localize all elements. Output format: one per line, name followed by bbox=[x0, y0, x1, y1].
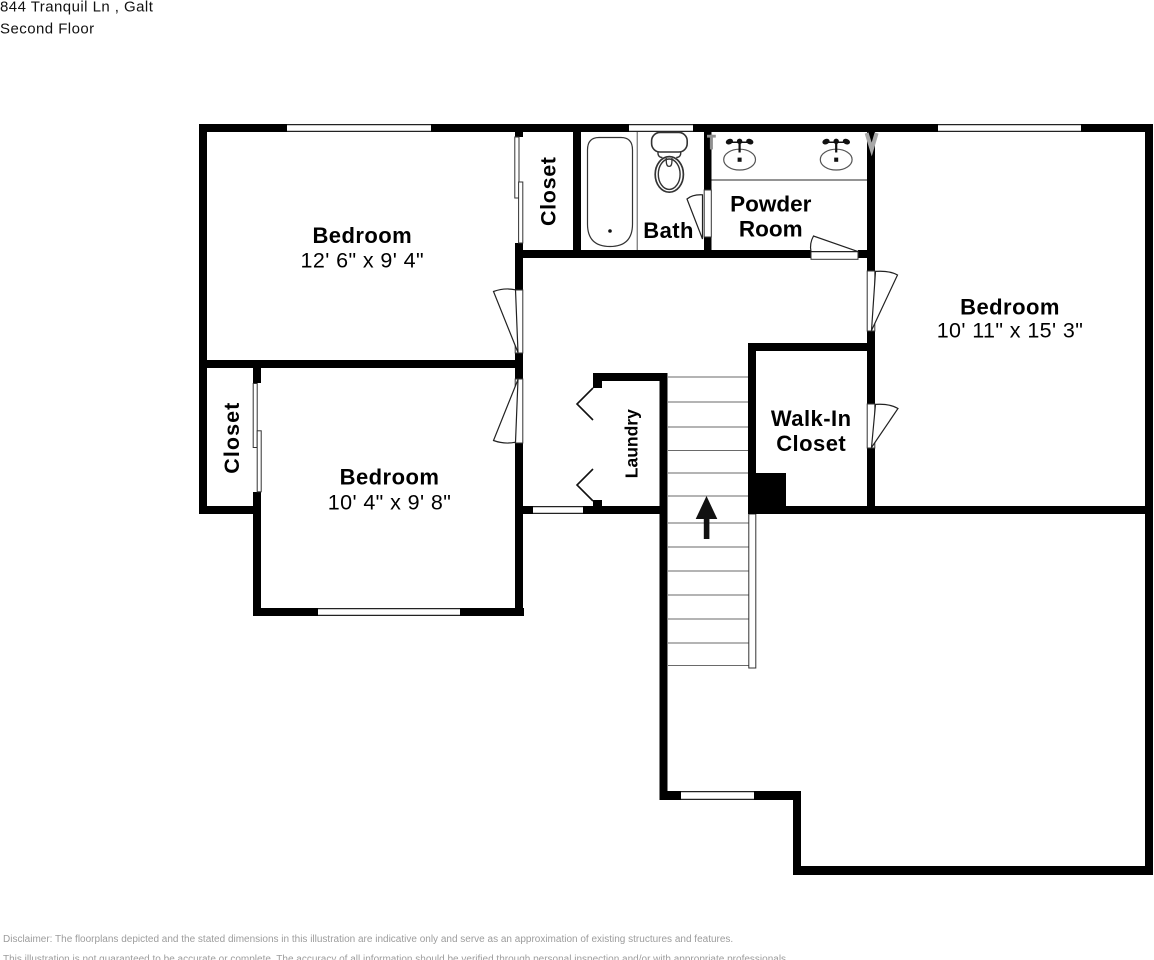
svg-text:This illustration is not guara: This illustration is not guaranteed to b… bbox=[3, 954, 789, 960]
svg-text:Closet: Closet bbox=[220, 402, 244, 474]
svg-text:10' 11" x 15' 3": 10' 11" x 15' 3" bbox=[937, 319, 1084, 343]
svg-text:Laundry: Laundry bbox=[622, 409, 642, 478]
svg-text:10' 4" x 9' 8": 10' 4" x 9' 8" bbox=[328, 490, 452, 514]
svg-text:Powder: Powder bbox=[730, 191, 812, 216]
svg-text:Room: Room bbox=[739, 216, 803, 241]
svg-text:12' 6" x 9' 4": 12' 6" x 9' 4" bbox=[301, 249, 425, 273]
svg-text:Closet: Closet bbox=[537, 156, 561, 226]
svg-text:Second Floor: Second Floor bbox=[0, 21, 95, 38]
svg-text:Bath: Bath bbox=[643, 218, 694, 243]
svg-text:Bedroom: Bedroom bbox=[340, 464, 440, 489]
svg-text:Bedroom: Bedroom bbox=[312, 223, 412, 248]
svg-text:Bedroom: Bedroom bbox=[960, 295, 1060, 320]
svg-text:Walk-In: Walk-In bbox=[771, 406, 852, 431]
svg-text:Closet: Closet bbox=[776, 431, 846, 456]
svg-text:844 Tranquil Ln , Galt: 844 Tranquil Ln , Galt bbox=[0, 0, 154, 16]
svg-text:Disclaimer: The floorplans dep: Disclaimer: The floorplans depicted and … bbox=[3, 934, 733, 945]
